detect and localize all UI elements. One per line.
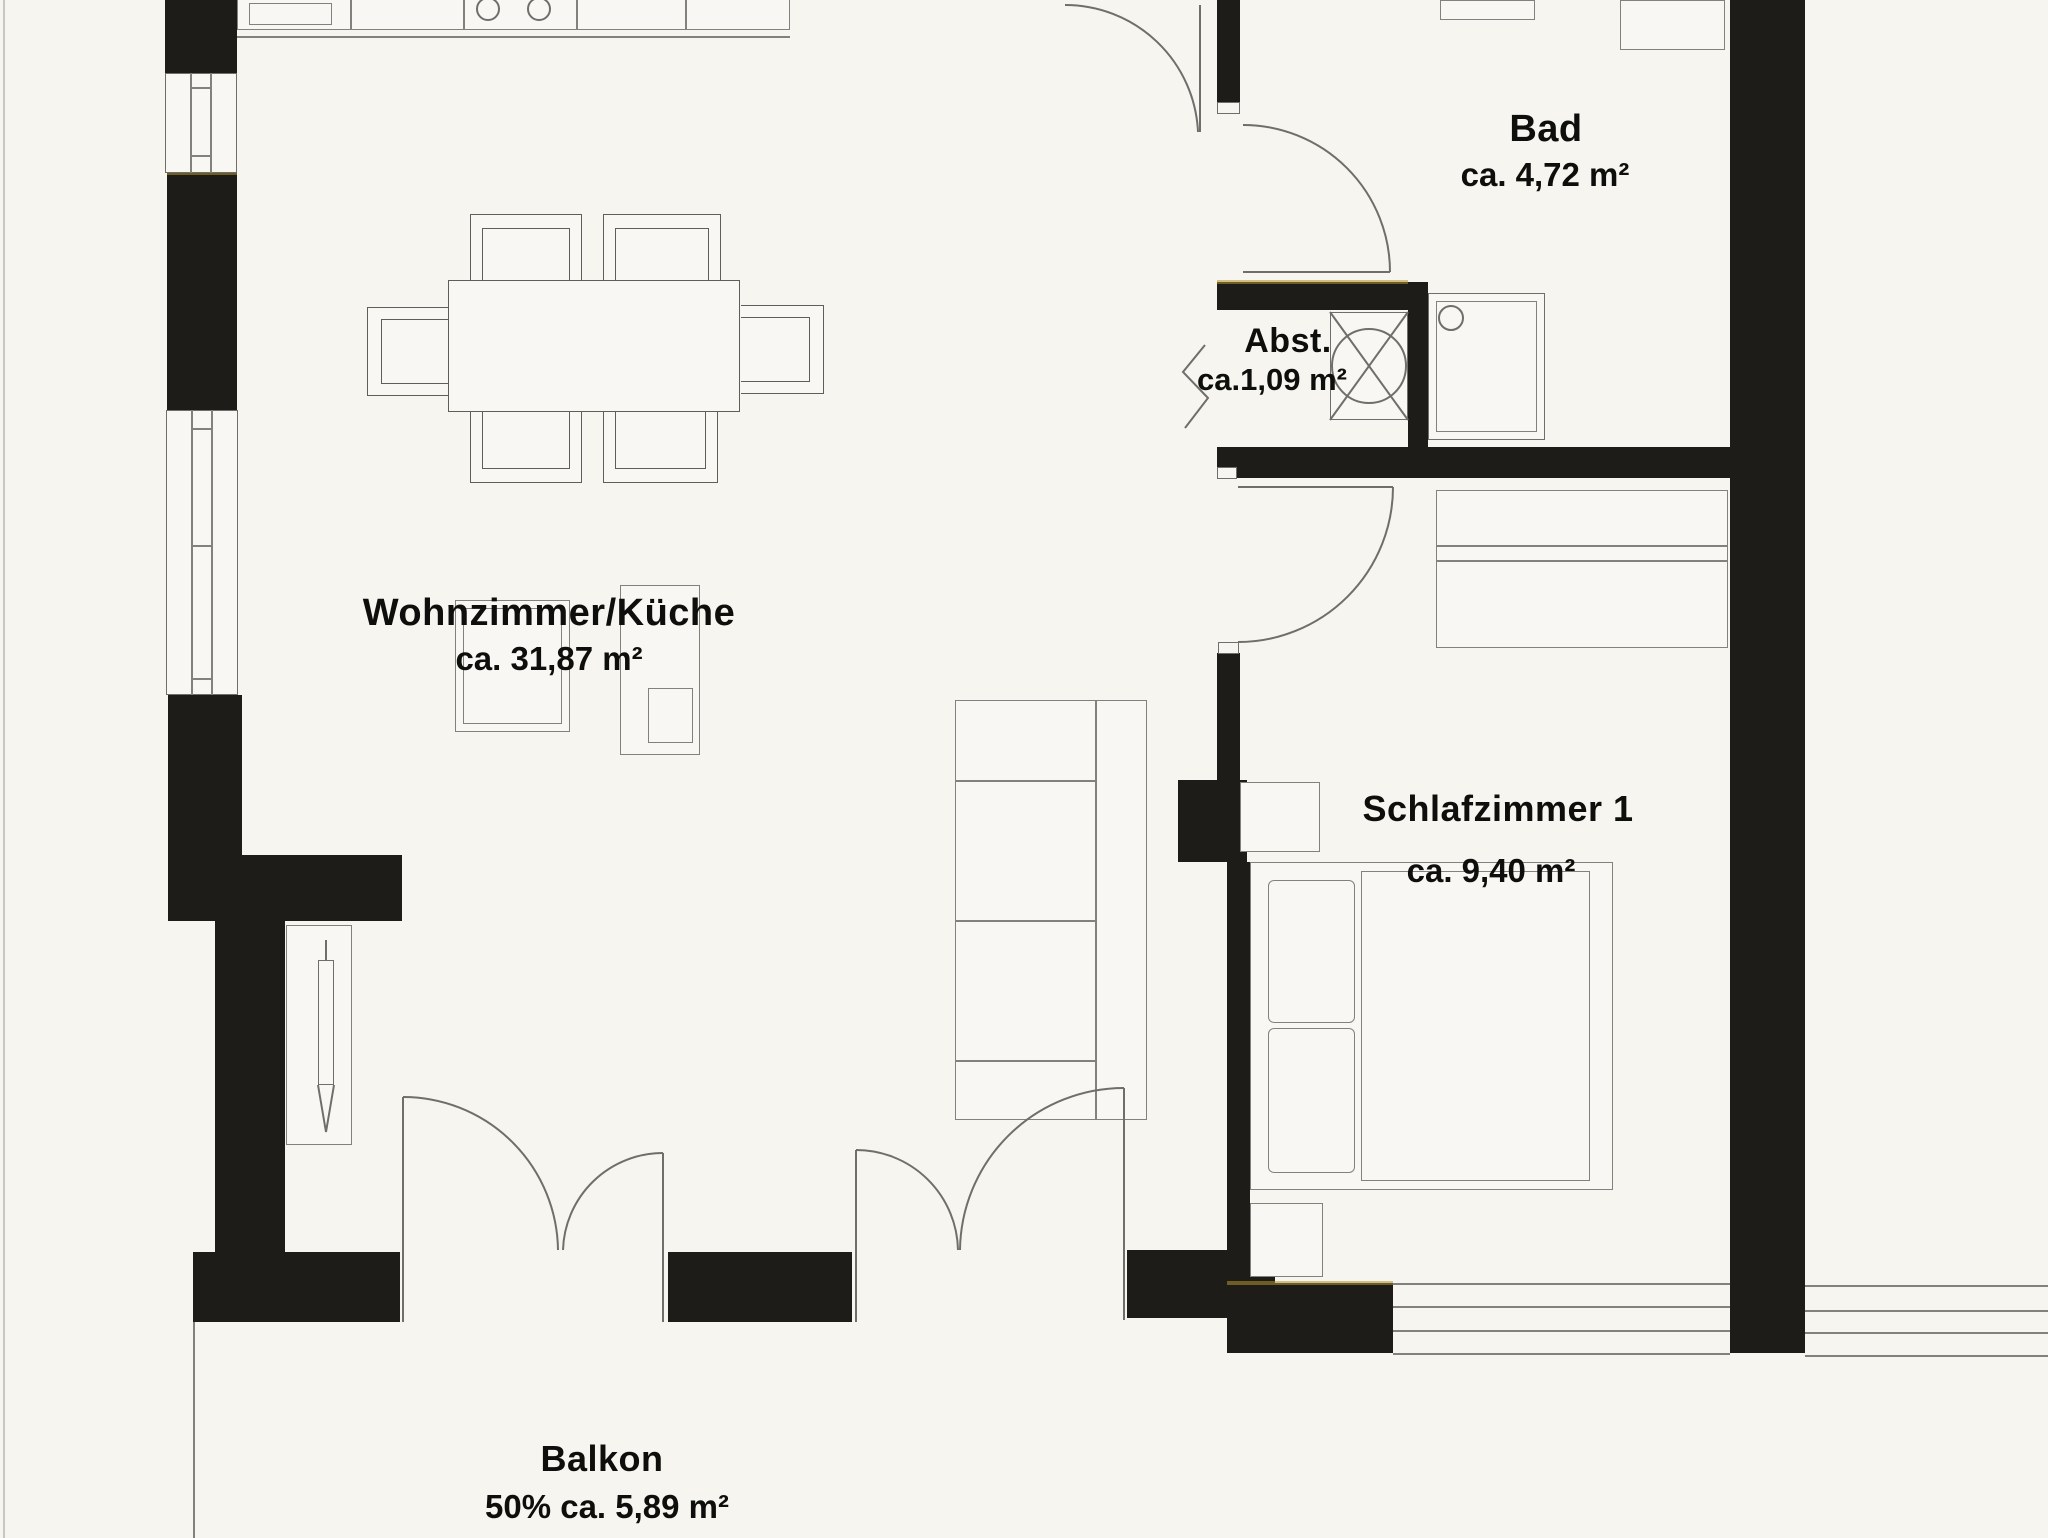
wardrobe-rail-line [1436,560,1728,562]
wall-living-bedroom-lower [1227,862,1250,1250]
bed-mattress [1361,871,1590,1181]
room-area-abstellraum: ca.1,09 m² [1197,362,1347,398]
dining-chair-seat [482,412,570,469]
room-label-wohnzimmer: Wohnzimmer/Küche [363,592,736,635]
window-left-lower [166,410,238,695]
balcony-railing-line [1805,1355,2048,1357]
wall-bad-abst-divider [1217,282,1408,310]
kitchen-unit-divider [685,0,687,30]
window-left-upper-mullion [190,155,212,157]
balcony-door1-right-arc [563,1153,663,1250]
scan-tint-artifact [1217,280,1408,284]
window-left-lower-mullion [191,545,213,547]
wall-entry-divider [1217,0,1240,103]
bedroom-door-swing-arc [1238,487,1393,642]
room-label-schlafzimmer: Schlafzimmer 1 [1362,788,1633,830]
door-stop-cap [1219,643,1238,653]
bed-pillow [1268,880,1355,1023]
bath-washbasin-cropped [1620,0,1725,50]
balcony-railing-line [1805,1285,2048,1287]
radiator-icon [318,960,334,1085]
entry-door-swing-arc [1065,5,1198,132]
floor-plan: Wohnzimmer/Küche ca. 31,87 m² Bad ca. 4,… [0,0,2048,1538]
door-stop-cap [1218,468,1236,478]
sofa-backrest-line [1095,700,1097,1120]
wardrobe-shelf-line [1436,545,1728,547]
dining-chair-seat [615,228,709,280]
kitchen-counter-edge-line [237,36,790,38]
sofa [955,700,1147,1120]
wall-left-mid [167,173,237,410]
bath-fixture-cropped [1440,0,1535,20]
dining-table [448,280,740,412]
scan-paper-edge [3,0,5,1538]
wall-left-bottom [215,921,285,1252]
kitchen-sink-icon [249,3,332,25]
bed-pillow [1268,1028,1355,1173]
wall-bedroom-top [1217,447,1730,478]
wall-living-bedroom-upper [1217,653,1240,780]
nightstand [1240,782,1320,852]
wall-bedroom-bottom-block [1227,1283,1393,1353]
wardrobe [1436,490,1728,648]
shower-tray-inner [1436,301,1537,432]
balcony-railing-line [1805,1310,2048,1312]
sofa-cushion-line [955,920,1097,922]
window-left-lower-frame [191,410,193,695]
kitchen-unit-divider [350,0,352,30]
room-label-abstellraum: Abst. [1244,322,1332,361]
room-label-bad: Bad [1509,108,1582,151]
dining-chair-seat [741,317,810,382]
bedroom-window-line [1393,1353,1730,1355]
door-stop-cap [1218,103,1239,113]
scan-tint-artifact [1227,1281,1393,1285]
room-label-balkon: Balkon [540,1438,663,1480]
wall-right [1730,0,1805,1353]
bedroom-window-line [1393,1330,1730,1332]
wall-left-lower [168,695,242,921]
bedroom-window-line [1393,1306,1730,1308]
dining-chair-seat [381,319,448,384]
kitchen-unit-divider [463,0,465,30]
room-area-balkon: 50% ca. 5,89 m² [485,1488,729,1526]
window-left-lower-mullion [191,678,213,680]
room-area-schlafzimmer: ca. 9,40 m² [1407,852,1576,890]
wall-bottom-mid-block [668,1252,852,1322]
window-left-upper-mullion [190,87,212,89]
bad-door-swing-arc [1243,125,1390,272]
sofa-armrest-line [955,1060,1097,1062]
nightstand [1250,1203,1323,1277]
window-left-lower-mullion [191,428,213,430]
wall-living-bedroom-pier [1178,780,1247,862]
balcony-railing-line [1805,1332,2048,1334]
dining-chair-seat [482,228,570,280]
wall-left-top [165,0,237,73]
window-left-lower-frame [211,410,213,695]
balcony-door1-left-arc [403,1097,558,1250]
wall-bottom-corner-block [193,1252,400,1322]
dining-chair-seat [615,412,706,469]
tv-device [648,688,693,743]
room-area-wohnzimmer: ca. 31,87 m² [455,640,642,678]
wall-left-l-extension [237,855,402,921]
balcony-boundary-line [193,1322,195,1538]
room-area-bad: ca. 4,72 m² [1461,156,1630,194]
kitchen-unit-divider [576,0,578,30]
sofa-armrest-line [955,780,1097,782]
bedroom-window-line [1393,1283,1730,1285]
balcony-door2-left-arc [856,1150,958,1250]
